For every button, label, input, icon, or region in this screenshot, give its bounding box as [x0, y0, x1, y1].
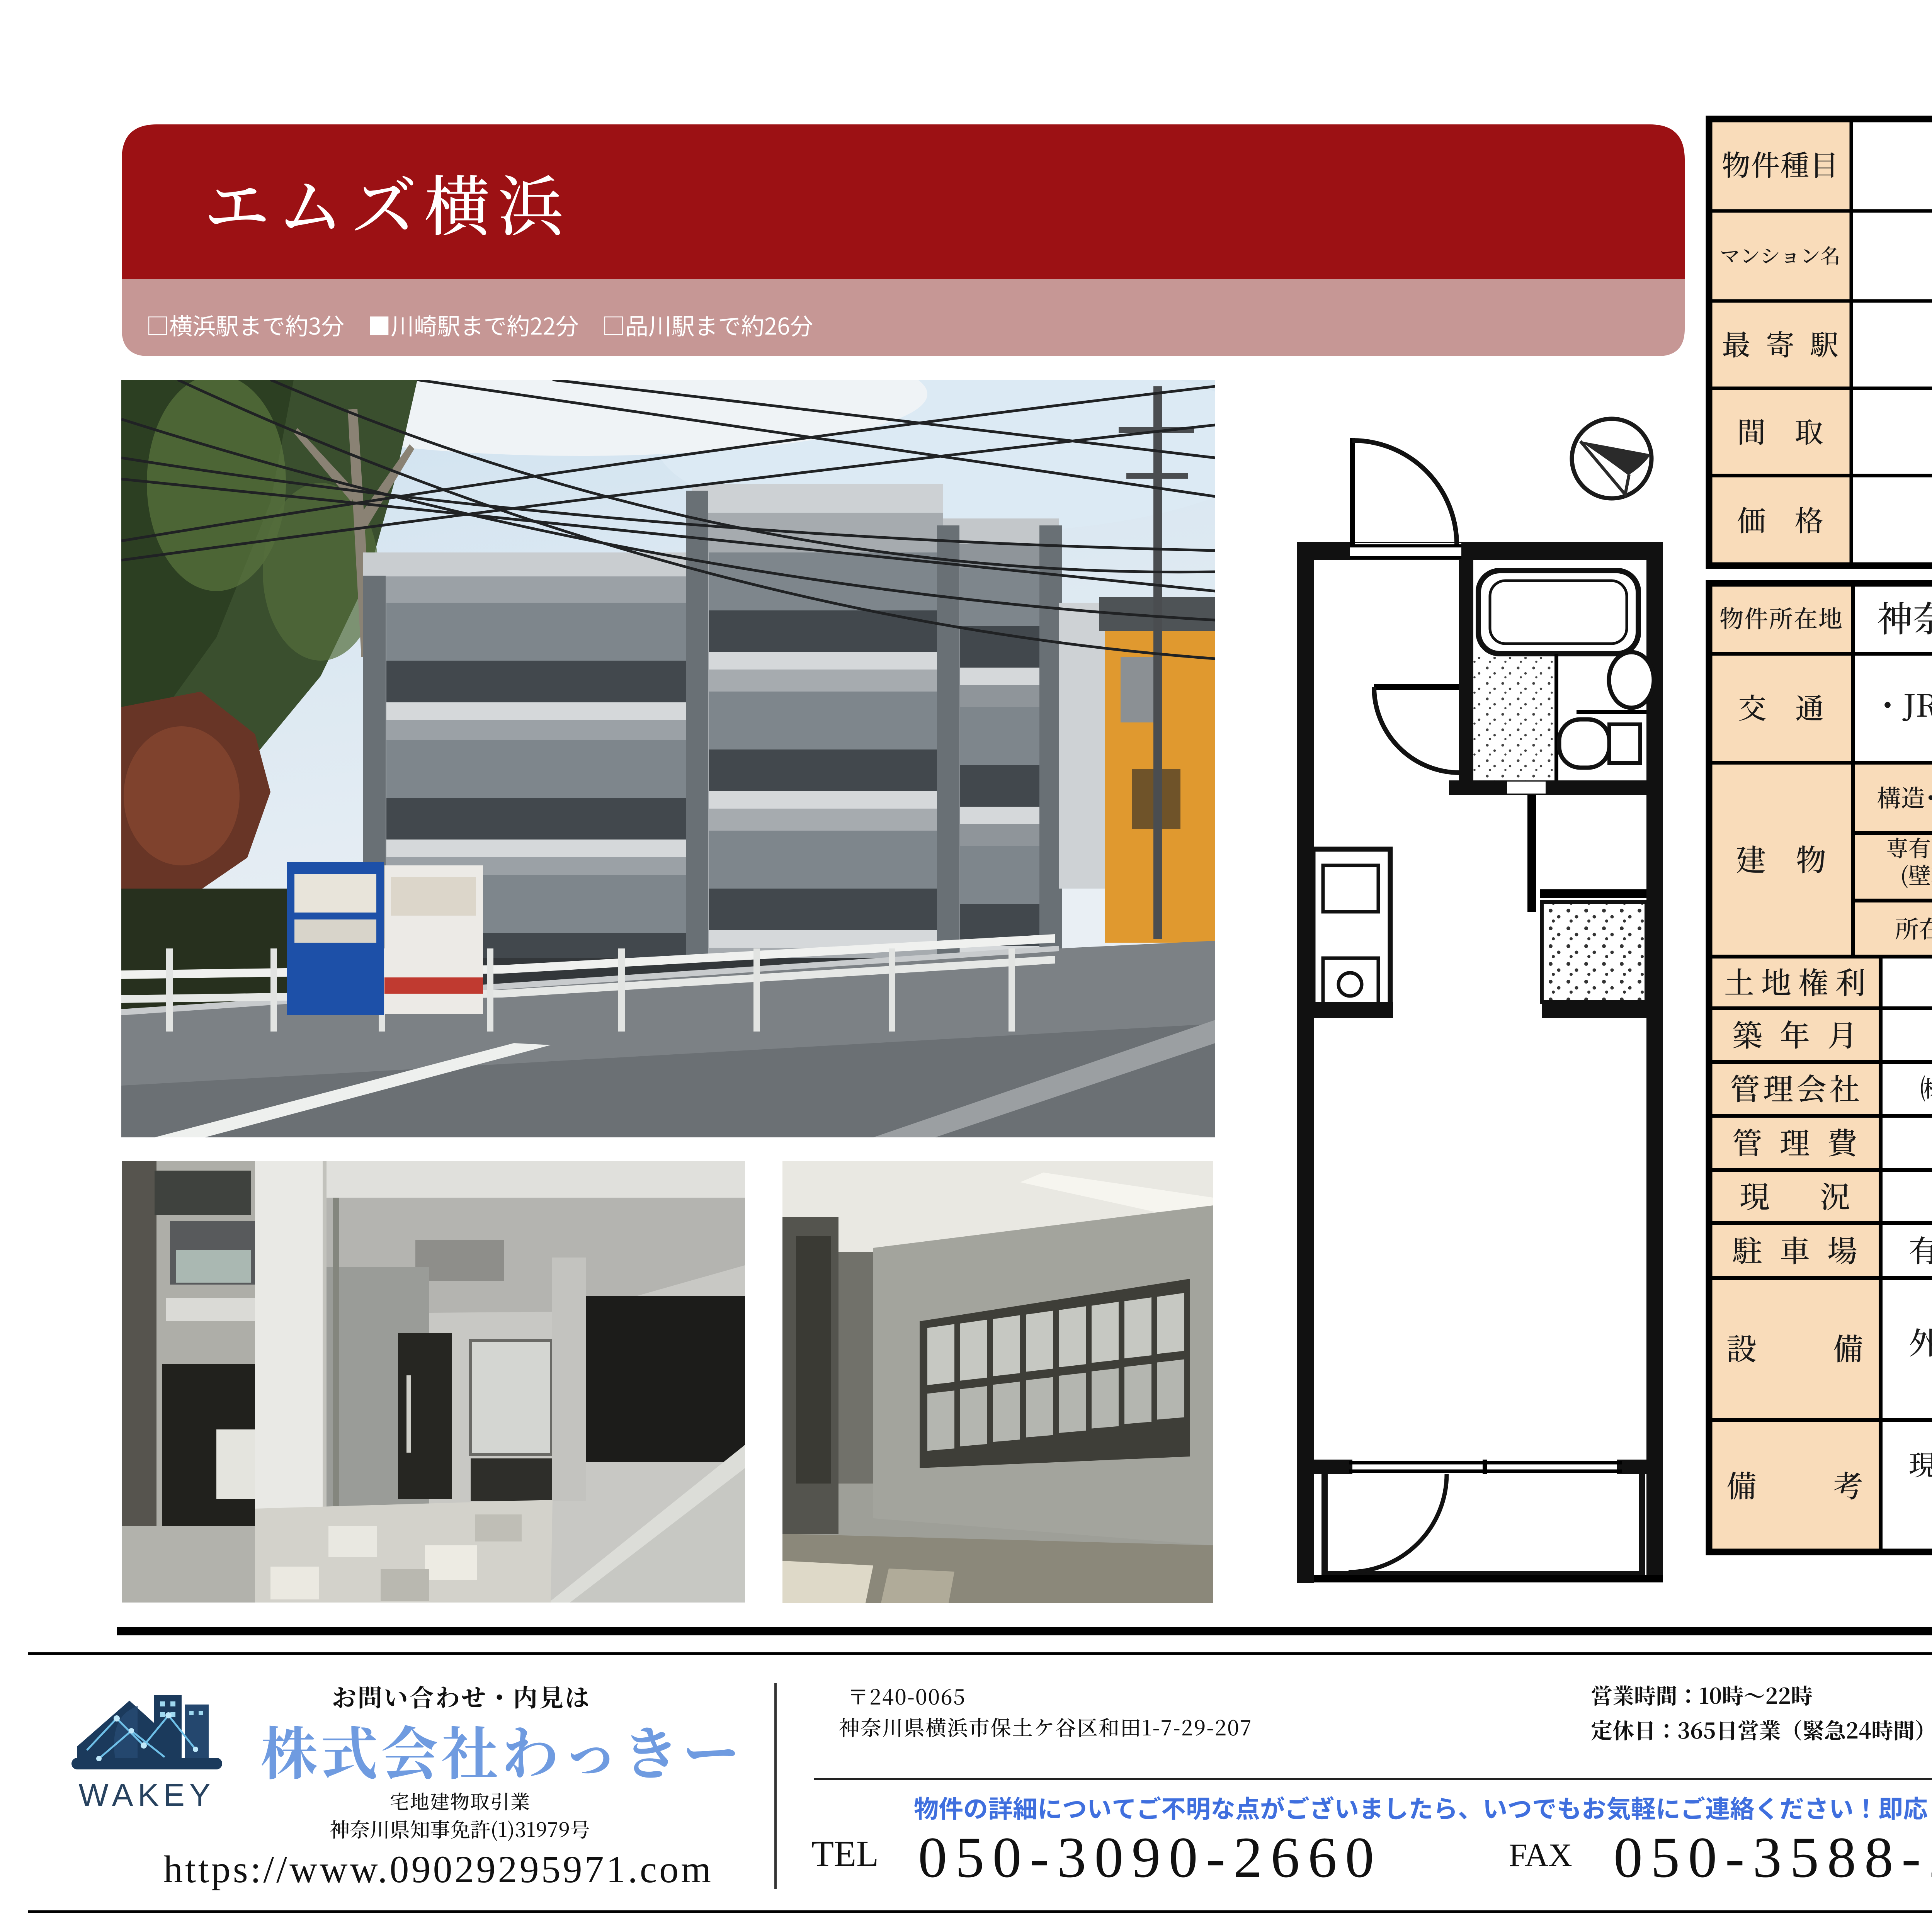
svg-text:050-3588-2213: 050-3588-2213	[1614, 1825, 1932, 1890]
svg-text:WAKEY: WAKEY	[78, 1778, 215, 1813]
svg-text:https://www.09029295971.com: https://www.09029295971.com	[163, 1848, 711, 1891]
svg-text:TEL: TEL	[811, 1833, 879, 1874]
svg-text:FAX: FAX	[1509, 1837, 1572, 1873]
